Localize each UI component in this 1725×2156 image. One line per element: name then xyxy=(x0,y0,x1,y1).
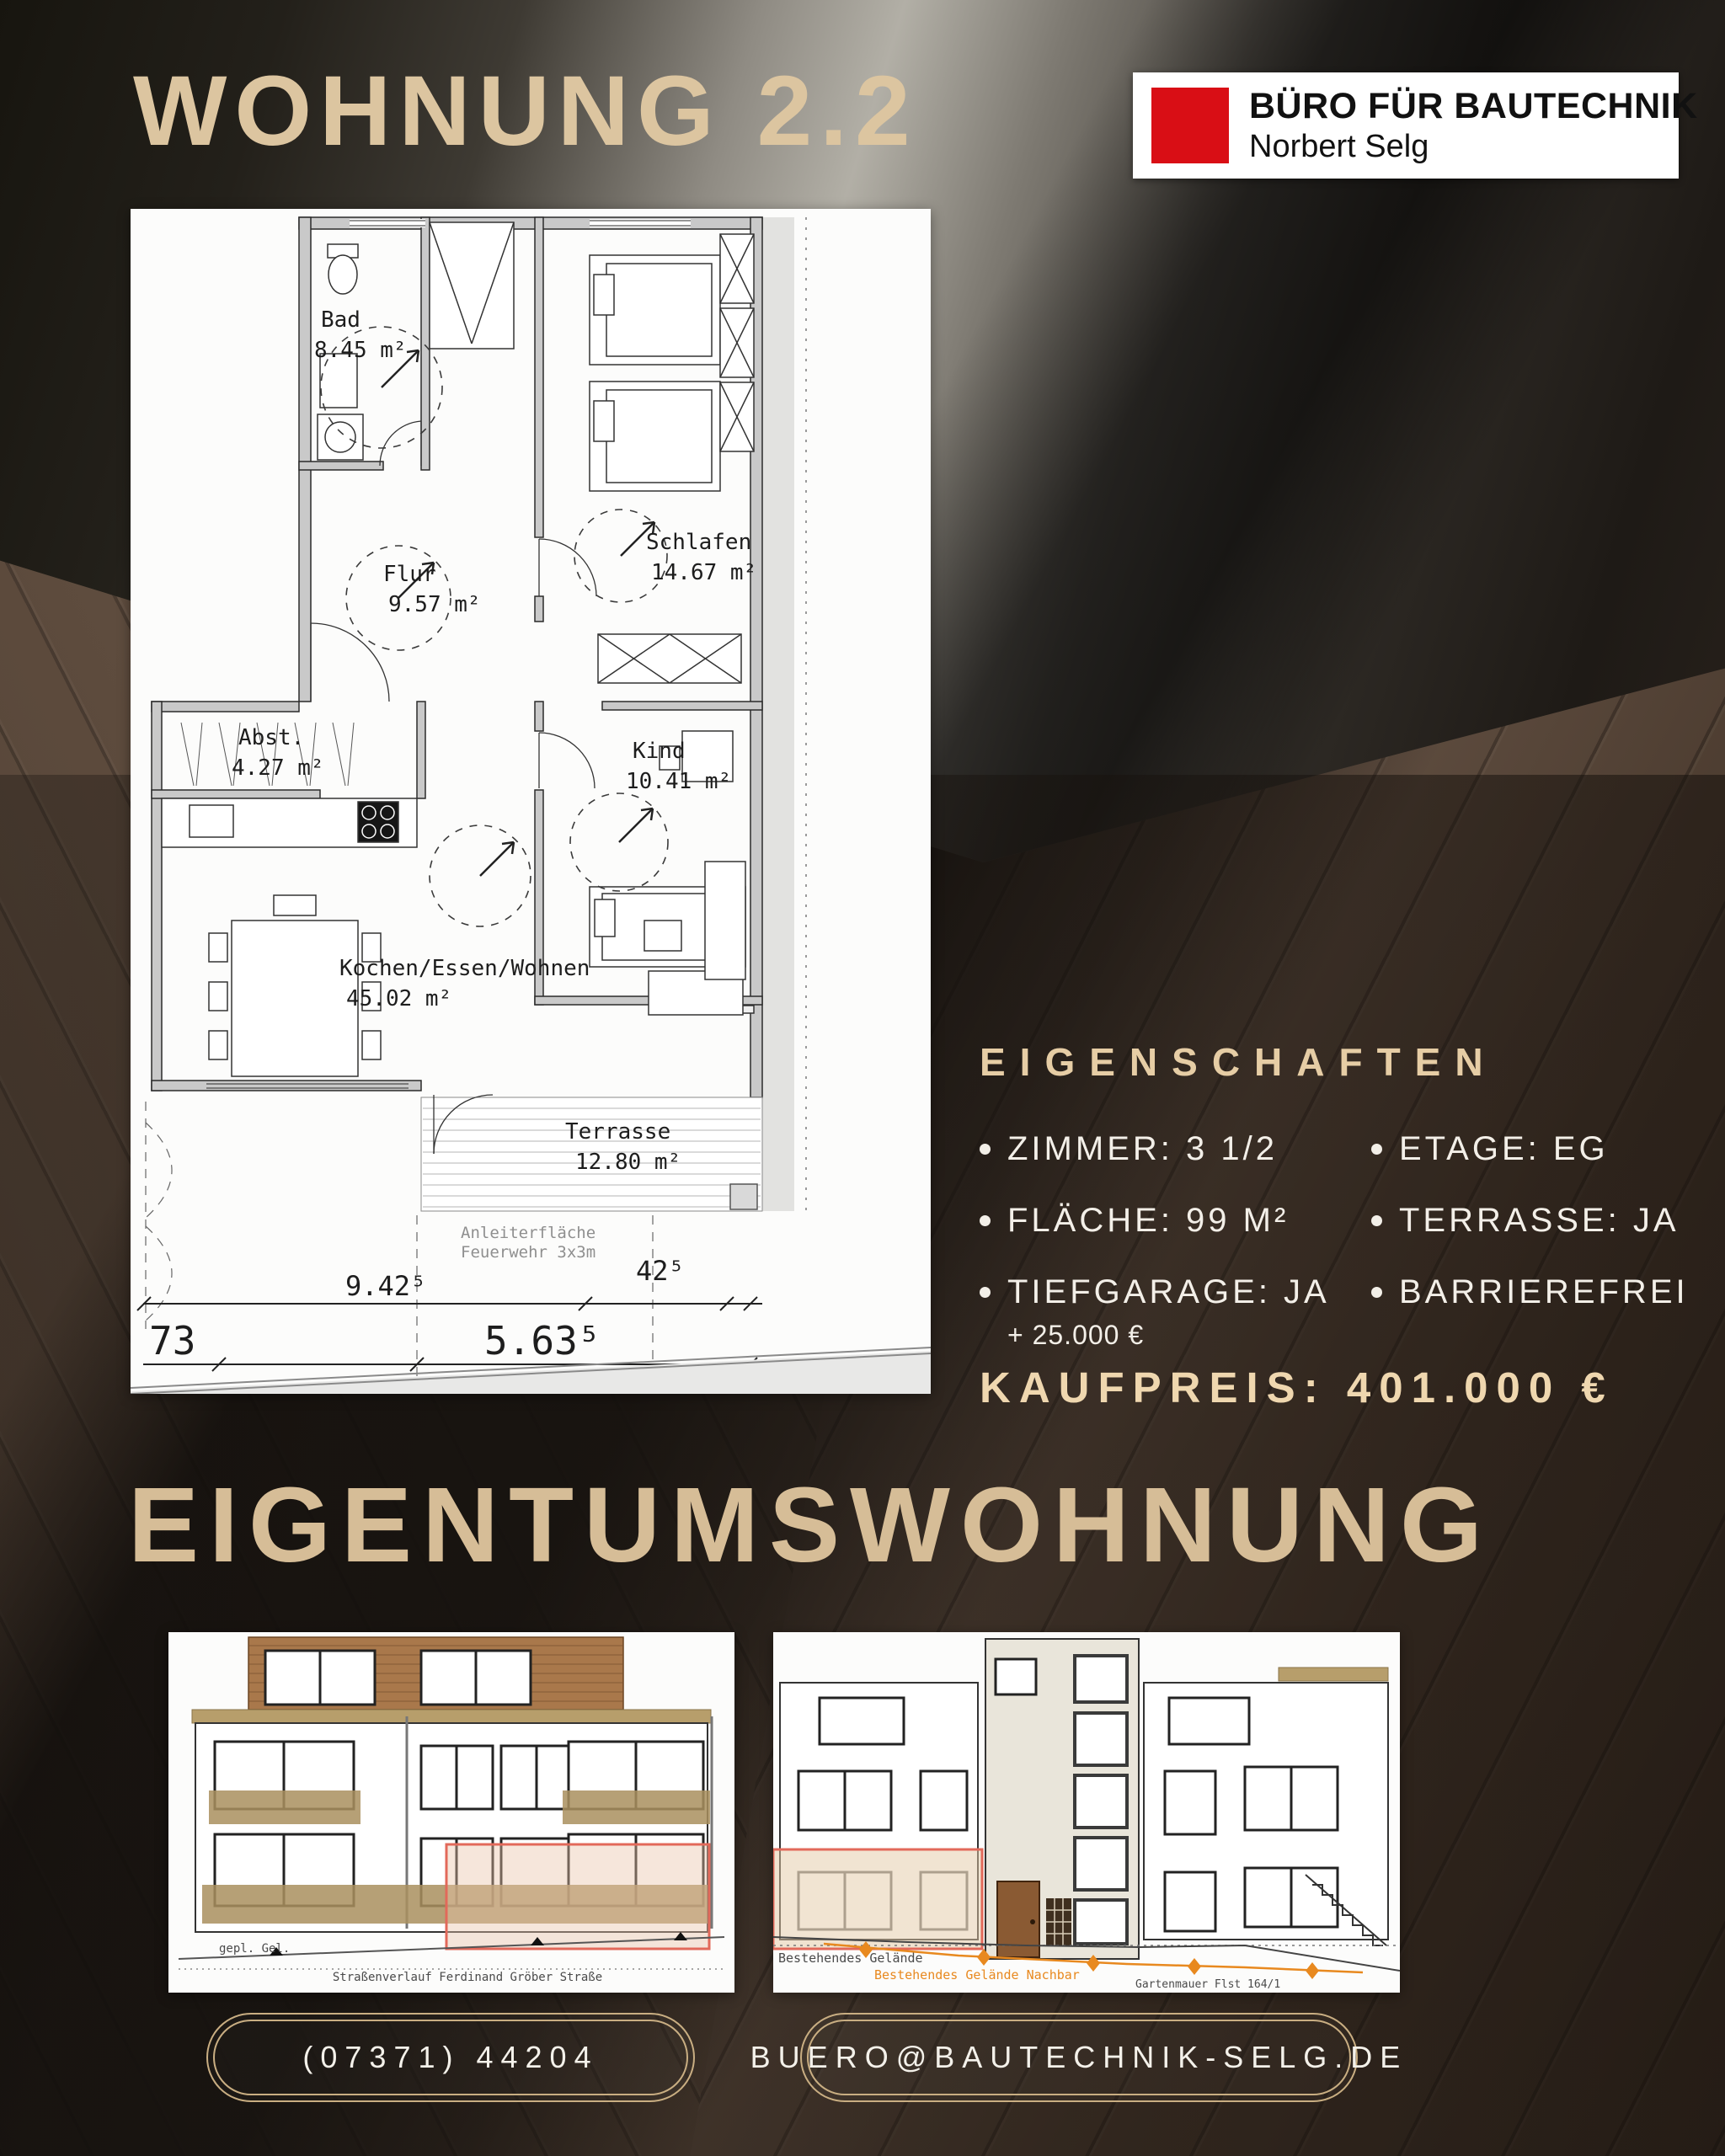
plan-exterior-band xyxy=(762,217,794,1211)
email-address: BUERO@BAUTECHNIK-SELG.DE xyxy=(750,2040,1408,2075)
prop-flaeche: FLÄCHE: 99 M² xyxy=(980,1202,1371,1240)
elevation-entrance-panel: Bestehendes Gelände Bestehendes Gelände … xyxy=(773,1632,1400,1993)
room-wohnen-area: 45.02 m² xyxy=(346,986,451,1011)
room-terrasse-area: 12.80 m² xyxy=(575,1150,681,1175)
bullet-icon xyxy=(980,1144,991,1155)
dim-left-partial: 73 xyxy=(149,1318,195,1364)
room-abst-name: Abst. xyxy=(238,725,304,750)
room-flur-area: 9.57 m² xyxy=(388,592,481,617)
elev2-center-tower xyxy=(985,1639,1139,1959)
elev1-attic xyxy=(248,1637,623,1710)
prop-etage: ETAGE: EG xyxy=(1371,1130,1725,1168)
bullet-icon xyxy=(1371,1215,1382,1226)
elev2-right-block xyxy=(1144,1668,1388,1940)
logo-person-name: Norbert Selg xyxy=(1249,129,1698,165)
elev2-left-block xyxy=(773,1683,982,1949)
prop-barrierefrei: BARRIEREFREI xyxy=(1371,1273,1725,1351)
dim-width-lower: 5.63⁵ xyxy=(484,1318,601,1364)
elev1-unit-highlight xyxy=(446,1844,709,1949)
room-schlafen-area: 14.67 m² xyxy=(651,560,756,585)
price-line: KAUFPREIS: 401.000 € xyxy=(980,1363,1614,1412)
elev2-mailboxes xyxy=(1046,1898,1071,1945)
elev1-balcony-left xyxy=(209,1790,360,1824)
prop-tiefgarage-note: + 25.000 € xyxy=(1007,1320,1330,1351)
elevation-street-drawing: gepl. Gel. Straßenverlauf Ferdinand Gröb… xyxy=(168,1632,734,1993)
phone-number: (07371) 44204 xyxy=(302,2040,598,2075)
properties-list: ZIMMER: 3 1/2 ETAGE: EG FLÄCHE: 99 M² TE… xyxy=(980,1130,1725,1351)
prop-terrasse: TERRASSE: JA xyxy=(1371,1202,1725,1240)
elev2-ground-label: Bestehendes Gelände xyxy=(778,1951,923,1966)
logo-company-name: BÜRO FÜR BAUTECHNIK xyxy=(1249,86,1698,127)
room-schlafen-name: Schlafen xyxy=(646,530,751,555)
page-title: WOHNUNG 2.2 xyxy=(133,54,918,168)
properties-heading: EIGENSCHAFTEN xyxy=(980,1039,1498,1085)
elev1-street-label: Straßenverlauf Ferdinand Gröber Straße xyxy=(333,1971,602,1984)
bullet-icon xyxy=(980,1287,991,1298)
floorplan-drawing: Bad 8.45 m² Schlafen 14.67 m² Flur 9.57 … xyxy=(131,209,931,1394)
room-bad-name: Bad xyxy=(321,307,360,333)
company-logo: BÜRO FÜR BAUTECHNIK Norbert Selg xyxy=(1133,72,1679,179)
dim-width-main: 9.42⁵ xyxy=(345,1270,426,1302)
email-button[interactable]: BUERO@BAUTECHNIK-SELG.DE xyxy=(800,2013,1358,2102)
plan-furniture xyxy=(162,222,754,1076)
room-terrasse-name: Terrasse xyxy=(565,1119,670,1145)
room-flur-name: Flur xyxy=(383,562,436,587)
floorplan-panel: Bad 8.45 m² Schlafen 14.67 m² Flur 9.57 … xyxy=(131,209,931,1394)
bullet-icon xyxy=(1371,1287,1382,1298)
room-wohnen-name: Kochen/Essen/Wohnen xyxy=(339,956,590,981)
logo-red-square-icon xyxy=(1151,88,1229,163)
room-kind-area: 10.41 m² xyxy=(626,769,731,794)
prop-tiefgarage: TIEFGARAGE: JA + 25.000 € xyxy=(980,1273,1371,1351)
bullet-icon xyxy=(1371,1144,1382,1155)
elev2-neighbor-label: Bestehendes Gelände Nachbar xyxy=(874,1967,1080,1983)
elev1-ground-label: gepl. Gel. xyxy=(219,1942,290,1956)
dim-width-right: 42⁵ xyxy=(636,1255,685,1287)
logo-text: BÜRO FÜR BAUTECHNIK Norbert Selg xyxy=(1249,86,1698,165)
room-bad-area: 8.45 m² xyxy=(314,338,407,363)
elev2-wall-label: Gartenmauer Flst 164/1 xyxy=(1135,1978,1280,1991)
bullet-icon xyxy=(980,1215,991,1226)
phone-button[interactable]: (07371) 44204 xyxy=(206,2013,695,2102)
elev1-balcony-right xyxy=(563,1790,710,1824)
plan-fire-note-line2: Feuerwehr 3x3m xyxy=(461,1243,595,1262)
room-kind-name: Kind xyxy=(633,739,686,764)
plan-fire-note-line1: Anleiterfläche xyxy=(461,1224,595,1242)
room-abst-area: 4.27 m² xyxy=(232,755,324,781)
section-title: EIGENTUMSWOHNUNG xyxy=(128,1464,1493,1586)
elevation-entrance-drawing: Bestehendes Gelände Bestehendes Gelände … xyxy=(773,1632,1400,1993)
prop-zimmer: ZIMMER: 3 1/2 xyxy=(980,1130,1371,1168)
elevation-street-panel: gepl. Gel. Straßenverlauf Ferdinand Gröb… xyxy=(168,1632,734,1993)
elev2-unit-highlight xyxy=(773,1849,982,1949)
